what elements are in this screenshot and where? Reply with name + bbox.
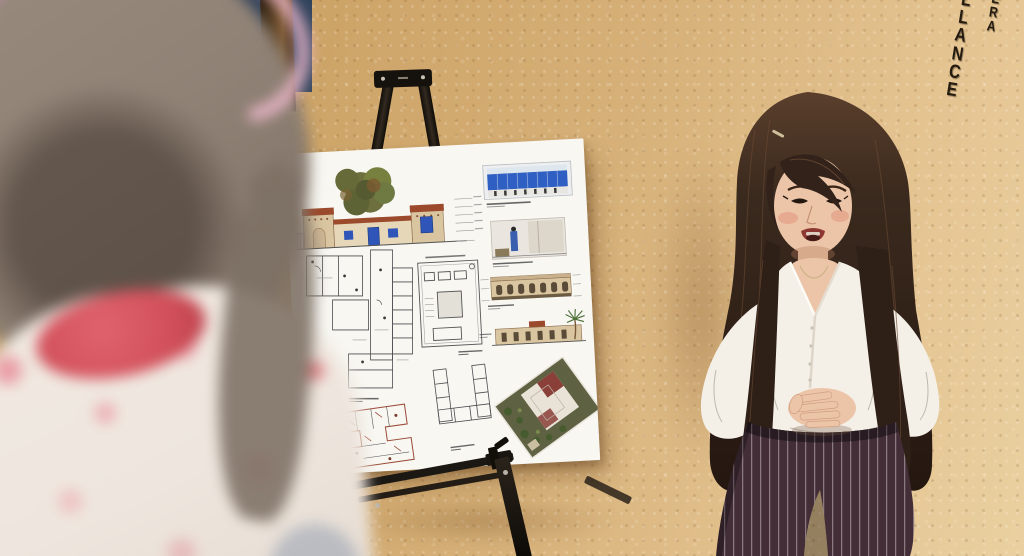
courtyard-rendering <box>491 217 567 267</box>
presenter-hands <box>787 388 856 436</box>
entry-curtainwall-rendering <box>483 161 573 208</box>
presenter-pants <box>716 422 914 556</box>
site-plan <box>417 254 482 357</box>
easel-right-leg <box>418 83 441 156</box>
wall-sign-column-2: E R A <box>985 0 1002 35</box>
elevation-with-palm <box>478 309 586 347</box>
street-elevation <box>481 273 583 310</box>
audience-person-foreground <box>0 0 410 556</box>
sign-letter: A <box>986 20 997 35</box>
scene-presentation-photo: L L A N C E E R A <box>0 0 1024 556</box>
easel-pivot-bolt <box>503 470 508 475</box>
easel-rear-leg <box>584 475 632 504</box>
aerial-site-card <box>495 357 601 458</box>
presenter-person <box>660 70 1024 556</box>
u-shaped-plan <box>433 364 495 452</box>
